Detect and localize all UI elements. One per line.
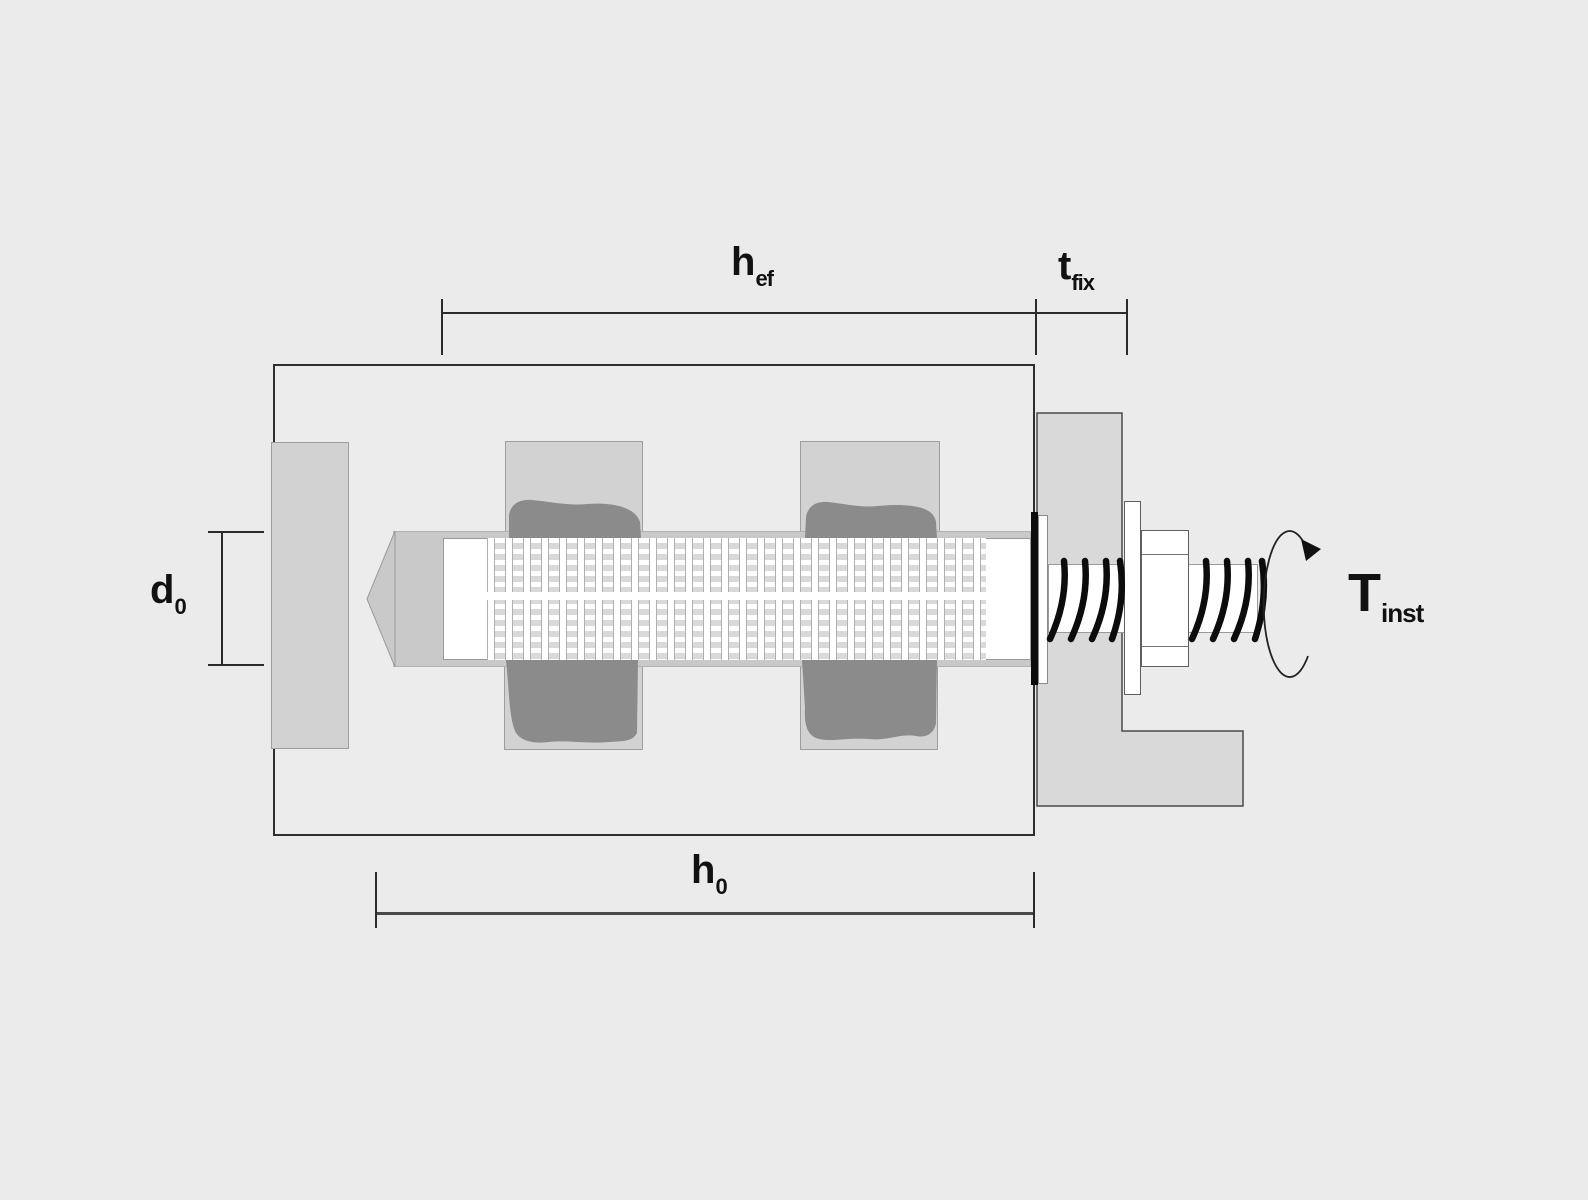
label-d0-main: d <box>150 570 173 610</box>
hollow-cell-top-1 <box>505 441 643 532</box>
anchor-installation-diagram: hef tfix d0 h0 Tinst <box>0 0 1588 1200</box>
dim-tick-surface <box>1035 299 1037 355</box>
dim-line-tfix <box>1036 312 1127 314</box>
label-tinst: Tinst <box>1348 566 1423 626</box>
hollow-cell-bottom-2 <box>800 666 938 750</box>
dim-tick-d0-bottom <box>208 664 264 666</box>
label-h0: h0 <box>691 850 727 898</box>
nut-facet-line-lower <box>1142 646 1188 647</box>
label-tfix-main: t <box>1058 246 1070 286</box>
label-d0: d0 <box>150 570 186 618</box>
sleeve-collar <box>1038 515 1048 684</box>
dim-tick-h0-right <box>1033 872 1035 928</box>
hex-nut <box>1141 530 1189 667</box>
dim-tick-h0-left <box>375 872 377 928</box>
front-web-block <box>271 442 349 749</box>
label-h0-main: h <box>691 850 714 890</box>
sleeve-end-plate <box>1031 512 1038 685</box>
dim-tick-hef-left <box>441 299 443 355</box>
label-hef-sub: ef <box>755 268 773 290</box>
label-tfix: tfix <box>1058 246 1094 294</box>
washer <box>1124 501 1141 695</box>
hollow-cell-top-2 <box>800 441 940 532</box>
label-tfix-sub: fix <box>1071 272 1094 294</box>
torque-rotation-arrowhead-icon <box>1301 539 1321 561</box>
torque-rotation-arrow-arc <box>1264 531 1308 677</box>
dim-tick-d0-top <box>208 531 264 533</box>
label-hef: hef <box>731 242 773 290</box>
label-tinst-main: T <box>1348 566 1380 620</box>
nut-facet-line-upper <box>1142 554 1188 555</box>
dim-line-h0 <box>376 912 1034 915</box>
dim-line-d0 <box>221 532 223 666</box>
label-h0-sub: 0 <box>715 876 726 898</box>
dim-tick-tfix-right <box>1126 299 1128 355</box>
hollow-cell-bottom-1 <box>504 666 643 750</box>
dim-line-hef <box>442 312 1036 314</box>
label-tinst-sub: inst <box>1381 600 1423 626</box>
anchor-rod-core <box>445 592 1029 600</box>
label-d0-sub: 0 <box>174 596 185 618</box>
label-hef-main: h <box>731 242 754 282</box>
